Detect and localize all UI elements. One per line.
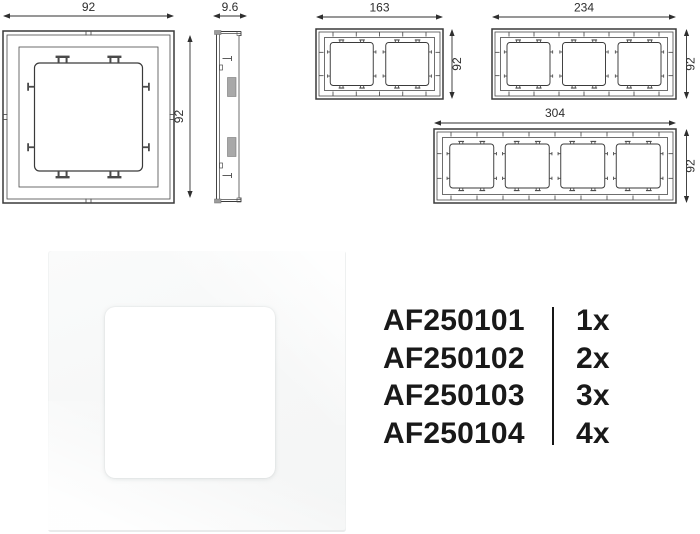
drawing-front-4gang: 30492 [434,106,698,203]
dimension-label: 163 [369,1,389,15]
frame-opening [105,307,275,478]
order-qty: 3x [576,377,610,415]
order-code: AF250102 [383,340,552,378]
order-table: AF250101 AF250102 AF250103 AF250104 1x 2… [383,302,610,452]
datasheet-page: 92929.6163922349230492 AF250101 AF250102… [0,0,700,534]
order-qty-column: 1x 2x 3x 4x [554,302,610,452]
order-qty: 1x [576,302,610,340]
drawing-front-1gang: 9292 [3,0,193,203]
dimension-label: 304 [545,106,565,120]
order-code-column: AF250101 AF250102 AF250103 AF250104 [383,302,552,452]
dimension-label: 92 [684,159,698,173]
drawing-front-3gang: 23492 [492,1,698,100]
order-qty: 2x [576,340,610,378]
drawing-front-2gang: 16392 [316,1,464,100]
order-code: AF250103 [383,377,552,415]
order-code: AF250101 [383,302,552,340]
order-qty: 4x [576,415,610,453]
dimension-label: 92 [172,110,186,124]
dimension-label: 92 [82,0,96,14]
drawing-side-profile: 9.6 [213,0,247,203]
dimension-label: 9.6 [222,0,239,14]
dimension-label: 234 [574,1,594,15]
dimension-label: 92 [684,57,698,71]
product-photo-1gang-frame [48,251,346,532]
dimension-label: 92 [450,57,464,71]
order-code: AF250104 [383,415,552,453]
